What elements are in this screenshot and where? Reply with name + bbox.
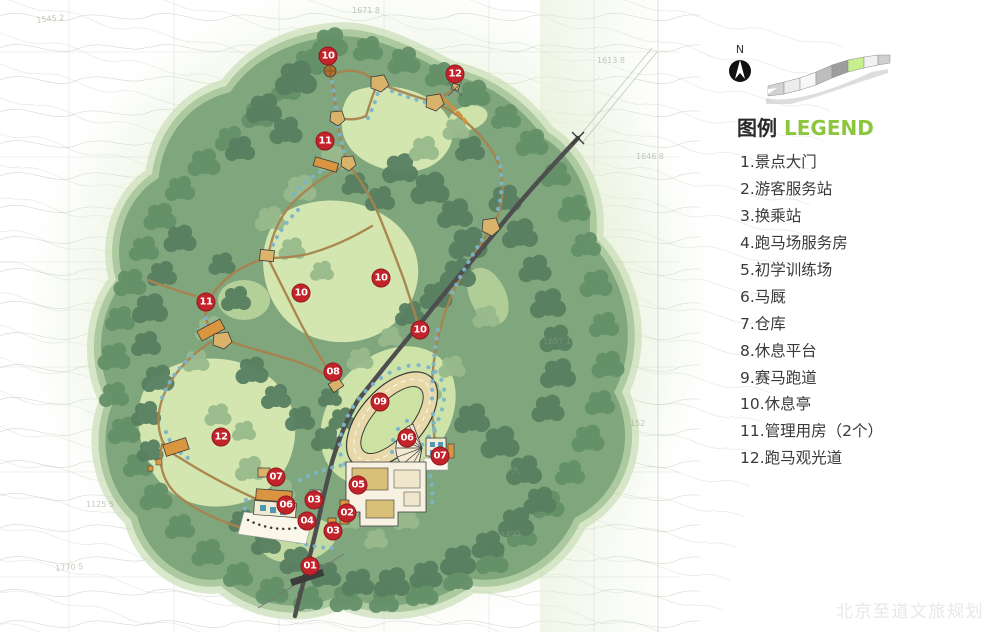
elevation-label: 1657 1 (543, 337, 571, 346)
legend-item-12: 12.跑马观光道 (740, 444, 883, 471)
legend-item-9: 9.赛马跑道 (740, 363, 883, 390)
map-marker-racetrack: 09 (371, 393, 390, 412)
watermark: 北京至道文旅规划 (836, 597, 984, 622)
elevation-label: 1490 (500, 529, 521, 540)
map-marker-rest-pavilion: 10 (411, 321, 430, 340)
legend-item-1: 1.景点大门 (740, 148, 883, 175)
legend-item-6: 6.马厩 (740, 282, 883, 309)
legend-title-zh: 图例 (737, 116, 777, 140)
map-marker-stable: 06 (398, 429, 417, 448)
map-marker-sightseeing-road: 12 (446, 65, 465, 84)
elevation-label: 1671 8 (352, 6, 380, 15)
legend-item-11: 11.管理用房（2个） (740, 417, 883, 444)
map-marker-rest-pavilion: 10 (372, 269, 391, 288)
site-plan-page: 1545 21671 81613 81646 81657 1152下中九1490… (0, 0, 992, 632)
elevation-label: 1770 5 (55, 562, 84, 573)
map-marker-rest-pavilion: 10 (292, 284, 311, 303)
legend-item-8: 8.休息平台 (740, 336, 883, 363)
map-marker-sightseeing-road: 12 (212, 428, 231, 447)
legend-item-4: 4.跑马场服务房 (740, 229, 883, 256)
map-marker-management-house: 11 (197, 293, 216, 312)
locator-highlight-segment (848, 57, 864, 72)
north-arrow: N (724, 42, 756, 90)
map-marker-warehouse: 07 (431, 447, 450, 466)
north-label: N (736, 43, 744, 56)
map-marker-service-house: 04 (298, 512, 317, 531)
map-marker-management-house: 11 (316, 132, 335, 151)
elevation-label: 1125 5 (86, 500, 114, 509)
legend-list: 1.景点大门 2.游客服务站 3.换乘站 4.跑马场服务房 5.初学训练场 6.… (740, 148, 883, 471)
elevation-label: 152 (630, 419, 645, 428)
map-marker-rest-platform: 08 (324, 363, 343, 382)
map-marker-visitor-service-station: 02 (338, 504, 357, 523)
legend-title-en: LEGEND (784, 116, 874, 140)
legend-title: 图例LEGEND (737, 112, 874, 141)
map-marker-stable: 06 (277, 496, 296, 515)
elevation-label: 下中九 (496, 465, 520, 476)
map-marker-rest-pavilion: 10 (319, 47, 338, 66)
legend-item-10: 10.休息亭 (740, 390, 883, 417)
locator-minimap (764, 46, 896, 104)
map-marker-scenic-gate: 01 (301, 557, 320, 576)
elevation-label: 1646 8 (636, 152, 664, 161)
legend-item-3: 3.换乘站 (740, 202, 883, 229)
legend-item-2: 2.游客服务站 (740, 175, 883, 202)
elevation-label: 1545 2 (36, 13, 65, 25)
map-marker-transfer-station: 03 (305, 491, 324, 510)
elevation-label: 1613 8 (597, 56, 625, 65)
map-marker-transfer-station: 03 (324, 522, 343, 541)
legend-item-7: 7.仓库 (740, 309, 883, 336)
map-marker-warehouse: 07 (267, 468, 286, 487)
map-marker-training-ground: 05 (349, 476, 368, 495)
legend-item-5: 5.初学训练场 (740, 256, 883, 283)
